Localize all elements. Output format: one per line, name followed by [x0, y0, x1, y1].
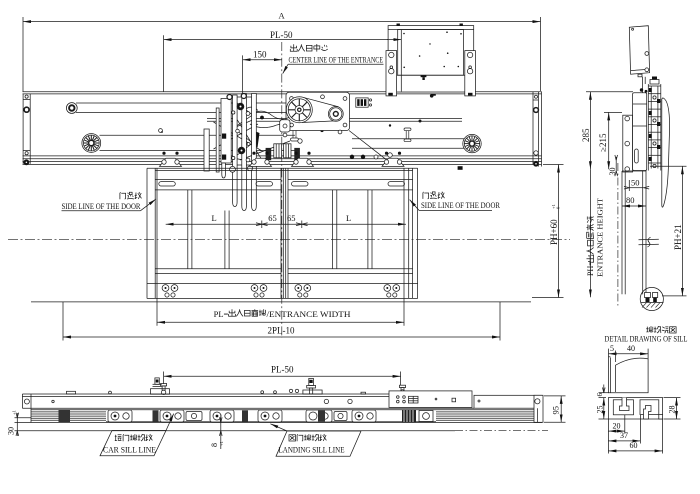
svg-text:30: 30: [608, 168, 617, 176]
svg-text:≥215: ≥215: [598, 133, 608, 152]
svg-text:60: 60: [630, 441, 638, 450]
svg-text:50: 50: [631, 177, 640, 187]
svg-text:65: 65: [287, 213, 296, 223]
svg-text:PH=: PH=: [586, 261, 595, 276]
svg-text:L: L: [212, 213, 217, 223]
svg-text:LANDING SILL LINE: LANDING SILL LINE: [279, 445, 345, 455]
svg-text:65: 65: [268, 213, 277, 223]
svg-text:CENTER LINE OF THE ENTRANCE: CENTER LINE OF THE ENTRANCE: [289, 55, 384, 64]
svg-text:A: A: [279, 11, 286, 21]
svg-text:+1: +1: [219, 440, 224, 446]
svg-text:/ENTRANCE WIDTH: /ENTRANCE WIDTH: [267, 309, 351, 319]
svg-text:PL-50: PL-50: [271, 365, 294, 375]
svg-text:80: 80: [626, 195, 635, 205]
svg-text:37: 37: [620, 431, 628, 440]
svg-text:28: 28: [668, 406, 677, 414]
svg-text:5: 5: [610, 344, 614, 353]
svg-text:L: L: [346, 213, 351, 223]
svg-text:30: 30: [7, 427, 16, 435]
svg-text:DETAIL DRAWING OF SILL: DETAIL DRAWING OF SILL: [605, 335, 688, 344]
svg-text:0: 0: [556, 206, 561, 209]
svg-text:SIDE LINE OF THE DOOR: SIDE LINE OF THE DOOR: [62, 202, 142, 211]
svg-text:20: 20: [613, 422, 621, 431]
svg-text:+1: +1: [12, 409, 17, 415]
svg-text:6: 6: [595, 393, 604, 397]
svg-text:150: 150: [253, 50, 267, 60]
svg-text:PH+60: PH+60: [549, 219, 559, 245]
svg-text:CAR SILL LINE: CAR SILL LINE: [103, 444, 156, 454]
svg-text:285: 285: [581, 128, 591, 142]
svg-text:95: 95: [550, 406, 560, 415]
svg-text:PH+21: PH+21: [673, 224, 683, 250]
svg-text:ENTRANCE HEIGHT: ENTRANCE HEIGHT: [595, 198, 604, 277]
svg-text:2PL-10: 2PL-10: [268, 326, 296, 336]
svg-text:40: 40: [627, 344, 635, 353]
svg-text:PL=: PL=: [214, 309, 229, 319]
svg-text:PL-50: PL-50: [270, 30, 293, 40]
svg-text:SIDE LINE OF THE DOOR: SIDE LINE OF THE DOOR: [421, 201, 501, 210]
svg-text:25: 25: [595, 406, 604, 414]
